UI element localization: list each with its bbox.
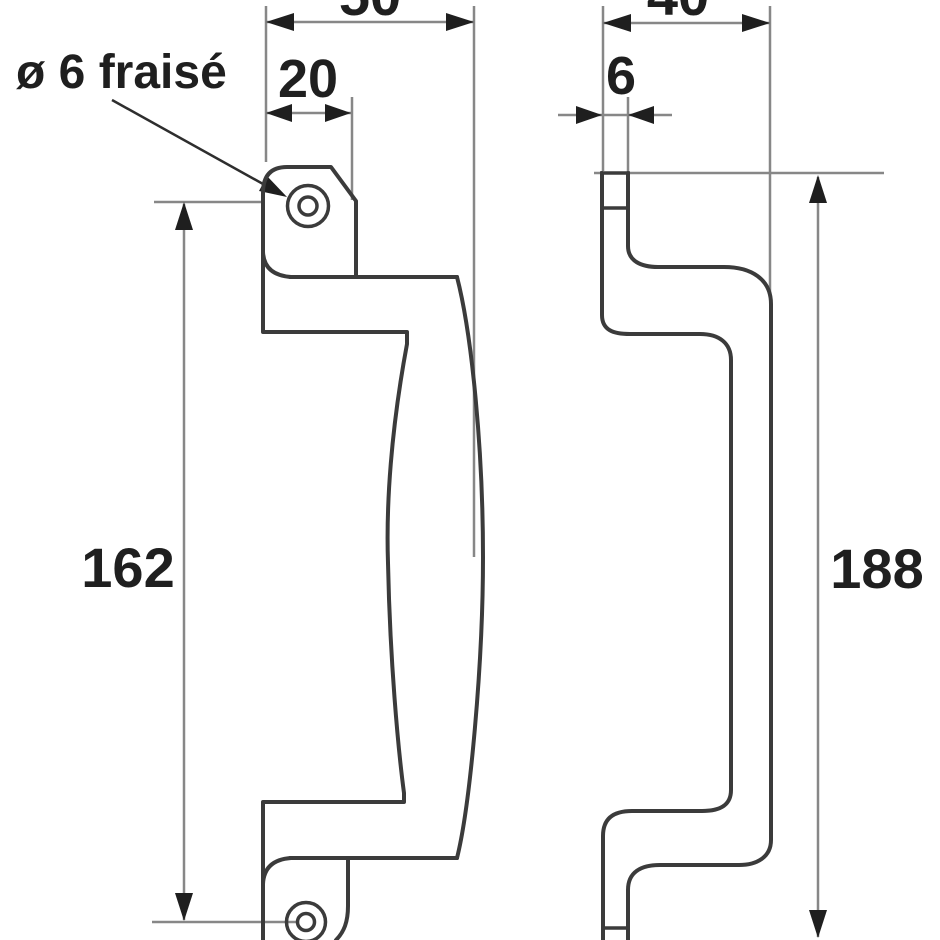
arrow-front-width-right	[446, 13, 474, 31]
dim-height-label: 188	[830, 537, 923, 600]
front-bottom-lug-right-edge	[336, 858, 348, 940]
hole-callout-leader	[112, 100, 287, 197]
dim-fixing-centers-label: 162	[81, 536, 174, 599]
arrow-plate-thickness-left	[576, 106, 602, 124]
side-profile-inner-face	[602, 173, 731, 940]
arrow-fixing-centers-top	[175, 202, 193, 230]
leader-line	[112, 100, 272, 189]
arrow-plate-thickness-right	[628, 106, 654, 124]
drawing-svg: ø 6 fraisé 50 20 162 40 6 188	[0, 0, 940, 940]
dim-lug-width-label: 20	[278, 49, 338, 109]
side-view	[600, 173, 771, 940]
arrow-front-width-left	[266, 13, 294, 31]
arrow-height-top	[809, 175, 827, 203]
front-view	[263, 167, 483, 940]
dim-depth-label: 40	[647, 0, 709, 27]
arrow-depth-left	[603, 14, 631, 32]
dimension-labels: ø 6 fraisé 50 20 162 40 6 188	[16, 0, 924, 600]
bottom-hole-bore	[298, 914, 315, 931]
technical-drawing-canvas: ø 6 fraisé 50 20 162 40 6 188	[0, 0, 940, 940]
front-top-fillet	[263, 252, 291, 277]
arrow-height-bottom	[809, 910, 827, 938]
arrow-fixing-centers-bottom	[175, 893, 193, 921]
top-hole-countersink	[288, 186, 329, 227]
dim-plate-thickness-label: 6	[606, 46, 636, 106]
front-outline-main	[263, 167, 407, 940]
front-bottom-fillet	[263, 858, 291, 884]
hole-callout-label: ø 6 fraisé	[16, 46, 227, 99]
top-hole-bore	[299, 197, 317, 215]
side-profile-outer-face	[628, 173, 771, 940]
dim-front-width-label: 50	[339, 0, 401, 27]
dimension-lines	[152, 6, 884, 937]
front-grip-outer-curve	[457, 277, 483, 858]
arrow-depth-right	[742, 14, 770, 32]
